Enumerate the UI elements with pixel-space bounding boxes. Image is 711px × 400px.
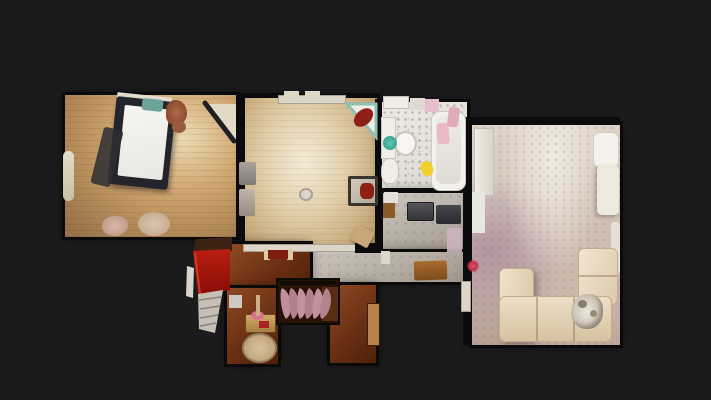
oval-rug [242,333,277,363]
wall-cabinet-top [474,128,494,196]
bed-mattress [117,105,169,180]
dog-spot-2 [590,310,597,317]
wall-nursery-bottom [243,244,356,252]
window-tab-1 [284,91,299,97]
pink-box [425,99,439,112]
wall-shelf-1 [239,162,256,185]
wall-nursery-top-left [243,93,280,98]
clothes-pile-beige [138,212,170,236]
sofa-back-right-seam [579,275,617,277]
hall-white-tab [381,251,390,264]
landing-door-light [367,303,380,346]
pink-wall-patch [447,228,462,252]
hall-white-shelf [384,192,398,203]
door-living-left [461,281,471,312]
teal-basin [383,136,397,150]
red-clothes-2 [172,121,186,133]
stairwell-base [278,280,338,323]
bath-shelf-box-1 [383,96,409,109]
wall-nursery-top-right [345,93,377,98]
brown-doormat [414,260,448,280]
dresser-red-item [360,183,374,199]
wall-shelf-2 [239,189,255,216]
floor-lamp-pole [256,295,260,316]
toilet [381,158,399,184]
teal-pillow [141,98,163,112]
floorplan-viewer[interactable] [0,0,711,400]
bath-shelf-box-2 [410,98,425,110]
radiator-bedroom [63,151,74,201]
wall-cabinet-low [472,192,485,233]
wall-living-top [463,117,620,125]
washing-machine [407,202,434,221]
scan-point-marker[interactable] [467,260,479,272]
red-staircase [186,237,232,333]
potty [299,188,313,201]
brown-box [383,203,395,218]
dog-spot-1 [578,300,587,308]
landing-white-box [229,295,242,308]
red-doormat [268,250,288,259]
sofa-bottom-seam-1 [536,297,538,341]
armchair-seat [597,165,619,215]
sink-oval [394,131,417,156]
armchair-back [593,132,619,168]
table-red-item [259,321,269,328]
dog-on-sofa [571,294,603,329]
dryer [436,205,461,224]
window-tab-2 [305,91,320,97]
wall-living-left-lower [463,310,472,345]
